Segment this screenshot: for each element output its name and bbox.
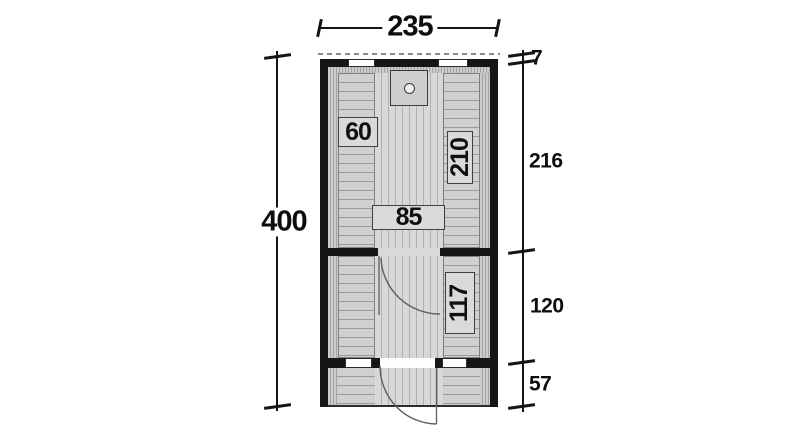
- right-dimension-line: [522, 50, 524, 412]
- roof-overhang-label: 7: [531, 48, 542, 69]
- door-swing-overlay: [0, 0, 790, 444]
- porch-door-swing-arc: [380, 366, 437, 424]
- overall-width-label: 235: [382, 13, 437, 42]
- floor-plan-canvas: 60 210 85 117 235 400 7 216 120 57: [0, 0, 790, 444]
- sauna-depth-label: 216: [529, 151, 563, 172]
- overall-height-label: 400: [256, 208, 311, 237]
- sauna-door-swing-arc: [381, 258, 440, 314]
- porch-depth-label: 57: [529, 374, 551, 395]
- front-room-depth-label: 120: [530, 296, 564, 317]
